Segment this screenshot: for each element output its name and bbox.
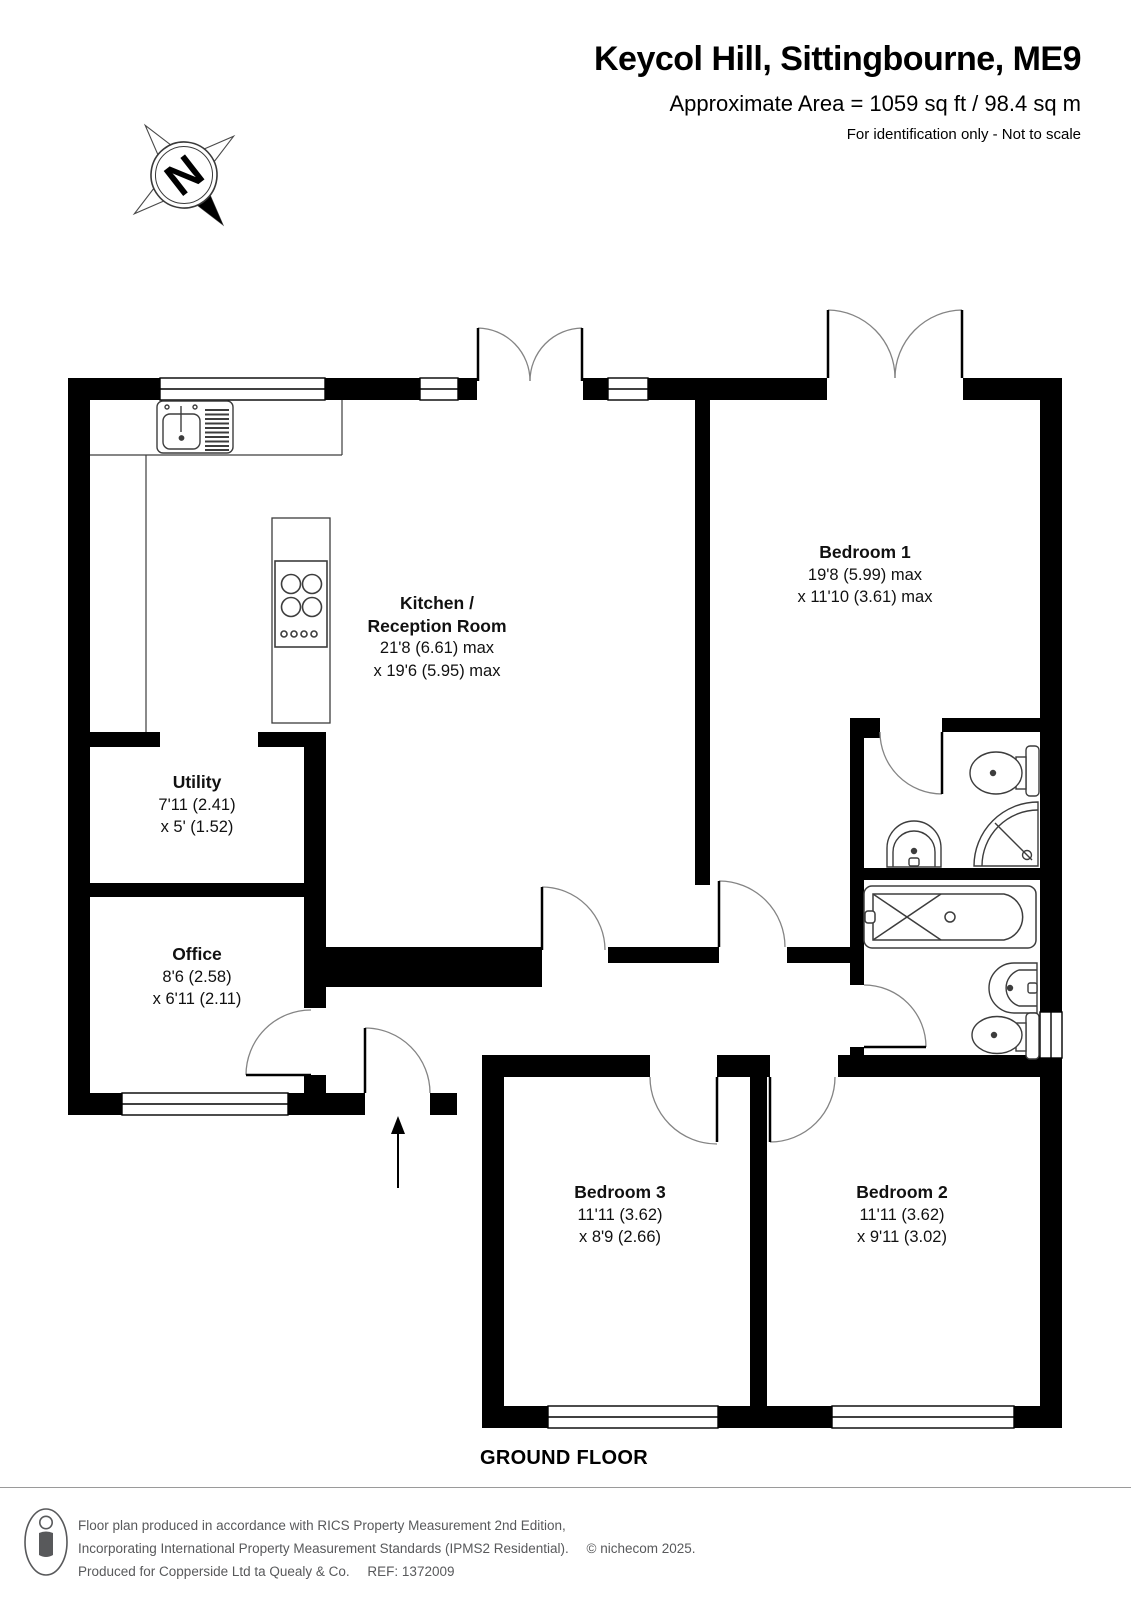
room-dimensions: 8'6 (2.58) (153, 966, 242, 989)
bathroom-door-arc (864, 985, 926, 1047)
copyright-text: © nichecom 2025. (587, 1541, 696, 1556)
shower-room-door-arc (880, 732, 942, 794)
toilet-icon-shower-room (970, 746, 1039, 796)
compass-rose-icon: N (96, 87, 273, 264)
room-dimensions: 7'11 (2.41) (158, 794, 235, 817)
room-name: Reception Room (367, 615, 506, 638)
room-label-office: Office 8'6 (2.58) x 6'11 (2.11) (153, 943, 242, 1011)
room-dimensions: x 9'11 (3.02) (856, 1226, 947, 1249)
footer-line-1: Floor plan produced in accordance with R… (78, 1514, 696, 1537)
kitchen-door-arc (542, 887, 605, 950)
room-name: Office (153, 943, 242, 966)
patio-door-kitchen-arc (478, 328, 530, 381)
room-name: Kitchen / (367, 592, 506, 615)
room-name: Utility (158, 771, 235, 794)
approximate-area: Approximate Area = 1059 sq ft / 98.4 sq … (594, 91, 1081, 117)
room-label-kitchen: Kitchen / Reception Room 21'8 (6.61) max… (367, 592, 506, 682)
room-dimensions: 11'11 (3.62) (574, 1204, 665, 1227)
floor-label: GROUND FLOOR (480, 1447, 648, 1470)
room-label-bedroom3: Bedroom 3 11'11 (3.62) x 8'9 (2.66) (574, 1181, 665, 1249)
window-kitchen-left (160, 378, 325, 400)
footer-line-3: Produced for Copperside Ltd ta Quealy & … (78, 1560, 696, 1583)
header: Keycol Hill, Sittingbourne, ME9 Approxim… (594, 40, 1081, 143)
footer: Floor plan produced in accordance with R… (78, 1514, 696, 1583)
window-kitchen-right (608, 378, 648, 400)
page-title: Keycol Hill, Sittingbourne, ME9 (594, 40, 1081, 79)
entrance-arrow (391, 1116, 405, 1188)
room-dimensions: x 19'6 (5.95) max (367, 660, 506, 683)
floorplan-page: N Keycol Hill, Sittingbourne, ME9 Approx… (0, 0, 1131, 1599)
room-dimensions: 11'11 (3.62) (856, 1204, 947, 1227)
office-door-arc (246, 1010, 311, 1075)
identification-note: For identification only - Not to scale (594, 126, 1081, 143)
person-scale-icon (22, 1506, 70, 1578)
room-name: Bedroom 1 (798, 541, 933, 564)
kitchen-island (272, 518, 330, 723)
patio-door-kitchen-arc (530, 328, 582, 381)
basin-icon-bathroom (989, 963, 1037, 1013)
bedroom2-door-arc (770, 1077, 835, 1142)
room-dimensions: x 6'11 (2.11) (153, 988, 242, 1011)
bedroom3-door-arc (650, 1077, 717, 1144)
basin-icon-shower-room (887, 821, 941, 867)
bath-icon (864, 886, 1036, 948)
window-bedroom3 (548, 1406, 718, 1428)
bedroom1-hall-door-arc (719, 881, 785, 947)
toilet-icon-bathroom (972, 1013, 1039, 1059)
window-bedroom2 (832, 1406, 1014, 1428)
kitchen-sink (157, 401, 233, 453)
room-dimensions: x 8'9 (2.66) (574, 1226, 665, 1249)
produced-for-text: Produced for Copperside Ltd ta Quealy & … (78, 1564, 350, 1579)
room-label-bedroom2: Bedroom 2 11'11 (3.62) x 9'11 (3.02) (856, 1181, 947, 1249)
room-dimensions: x 11'10 (3.61) max (798, 586, 933, 609)
room-label-bedroom1: Bedroom 1 19'8 (5.99) max x 11'10 (3.61)… (798, 541, 933, 609)
room-dimensions: 19'8 (5.99) max (798, 564, 933, 587)
corner-shower-icon (974, 802, 1038, 866)
window-kitchen-mid (420, 378, 458, 400)
room-dimensions: x 5' (1.52) (158, 816, 235, 839)
window-bathroom (1040, 1012, 1062, 1058)
hob-icon (275, 561, 327, 647)
patio-door-bedroom1-arc (895, 310, 962, 378)
room-dimensions: 21'8 (6.61) max (367, 637, 506, 660)
patio-door-bedroom1-arc (828, 310, 895, 378)
front-door-arc (365, 1028, 430, 1093)
room-name: Bedroom 2 (856, 1181, 947, 1204)
reference-number: REF: 1372009 (367, 1564, 454, 1579)
footer-ipms-text: Incorporating International Property Mea… (78, 1541, 569, 1556)
room-label-utility: Utility 7'11 (2.41) x 5' (1.52) (158, 771, 235, 839)
room-name: Bedroom 3 (574, 1181, 665, 1204)
footer-line-2: Incorporating International Property Mea… (78, 1537, 696, 1560)
window-office (122, 1093, 288, 1115)
footer-divider (0, 1487, 1131, 1488)
